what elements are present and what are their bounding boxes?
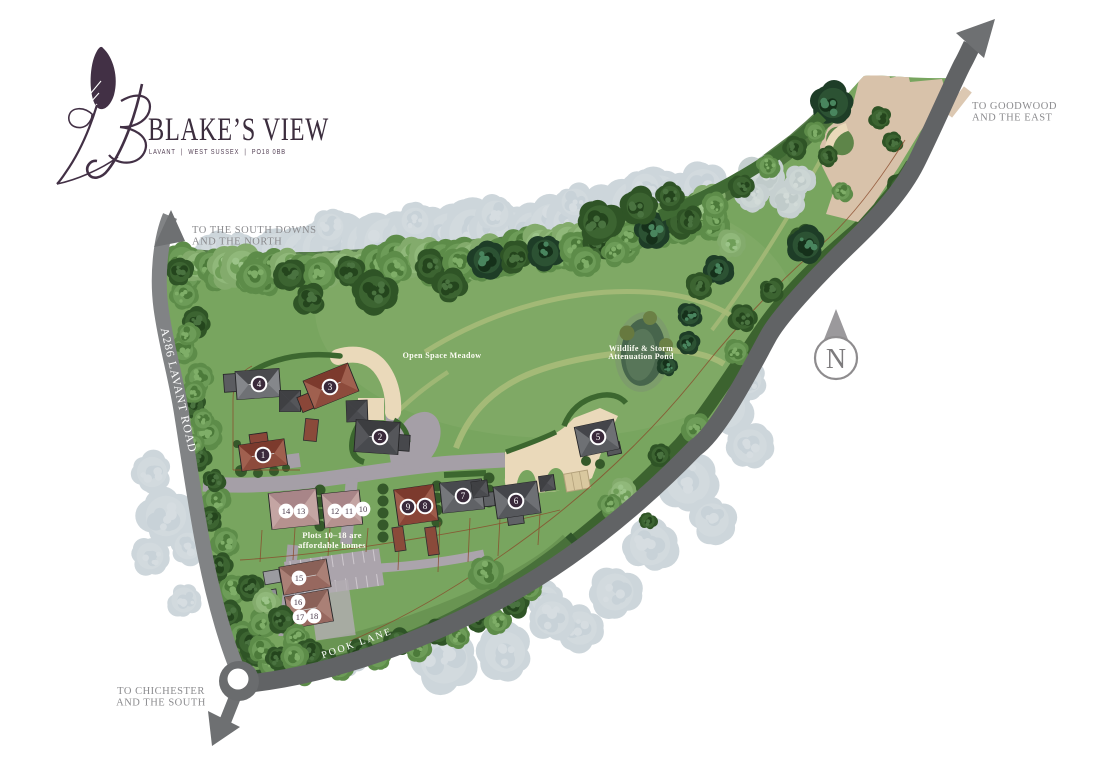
svg-text:BLAKE’S VIEW: BLAKE’S VIEW [148, 112, 329, 148]
svg-text:Open Space Meadow: Open Space Meadow [403, 351, 482, 360]
svg-text:7: 7 [461, 491, 466, 501]
svg-text:17: 17 [296, 612, 305, 622]
svg-text:5: 5 [596, 432, 601, 442]
svg-text:TO GOODWOOD: TO GOODWOOD [972, 101, 1057, 112]
svg-text:3: 3 [328, 382, 333, 392]
svg-text:TO CHICHESTER: TO CHICHESTER [117, 686, 205, 697]
svg-text:AND THE EAST: AND THE EAST [972, 113, 1053, 124]
svg-text:16: 16 [294, 597, 303, 607]
svg-text:N: N [826, 344, 846, 375]
svg-text:9: 9 [406, 502, 411, 512]
svg-text:Attenuation Pond: Attenuation Pond [608, 352, 674, 361]
svg-text:14: 14 [282, 506, 291, 516]
svg-text:LAVANT | WEST SUSSEX | PO1: LAVANT | WEST SUSSEX | PO18 0BB [149, 147, 286, 156]
svg-text:11: 11 [345, 506, 353, 516]
svg-text:1: 1 [261, 450, 266, 460]
svg-text:8: 8 [423, 501, 428, 511]
svg-text:TO THE SOUTH DOWNS: TO THE SOUTH DOWNS [192, 225, 316, 236]
svg-text:Plots 10–18 are: Plots 10–18 are [302, 530, 362, 540]
svg-text:AND THE SOUTH: AND THE SOUTH [116, 698, 206, 709]
svg-text:12: 12 [331, 506, 340, 516]
svg-text:2: 2 [378, 432, 383, 442]
svg-text:15: 15 [295, 573, 304, 583]
svg-text:18: 18 [310, 611, 319, 621]
svg-text:13: 13 [297, 506, 306, 516]
svg-text:affordable homes: affordable homes [298, 540, 366, 550]
svg-text:10: 10 [359, 504, 368, 514]
svg-text:AND THE NORTH: AND THE NORTH [192, 237, 282, 248]
svg-text:4: 4 [257, 379, 262, 389]
svg-text:6: 6 [514, 496, 519, 506]
